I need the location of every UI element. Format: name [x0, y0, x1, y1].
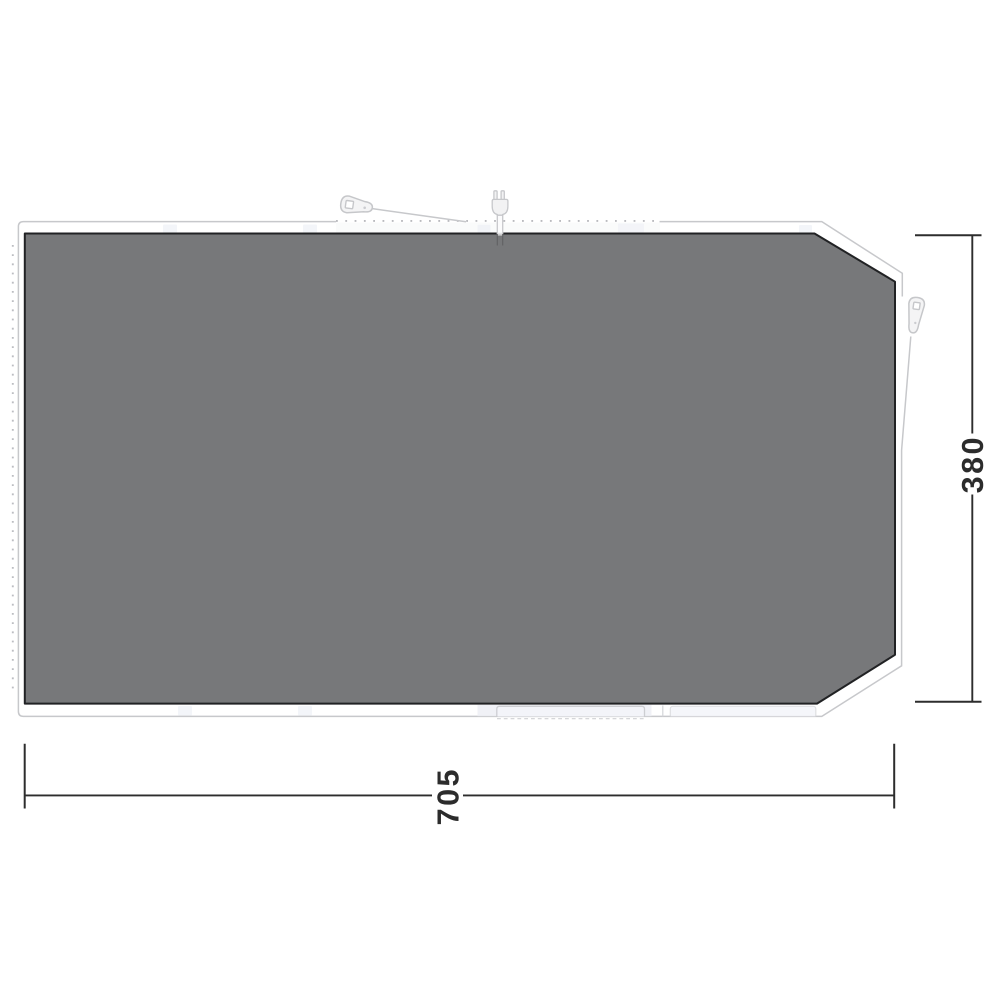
- svg-text:705: 705: [432, 767, 466, 825]
- svg-text:380: 380: [956, 435, 990, 493]
